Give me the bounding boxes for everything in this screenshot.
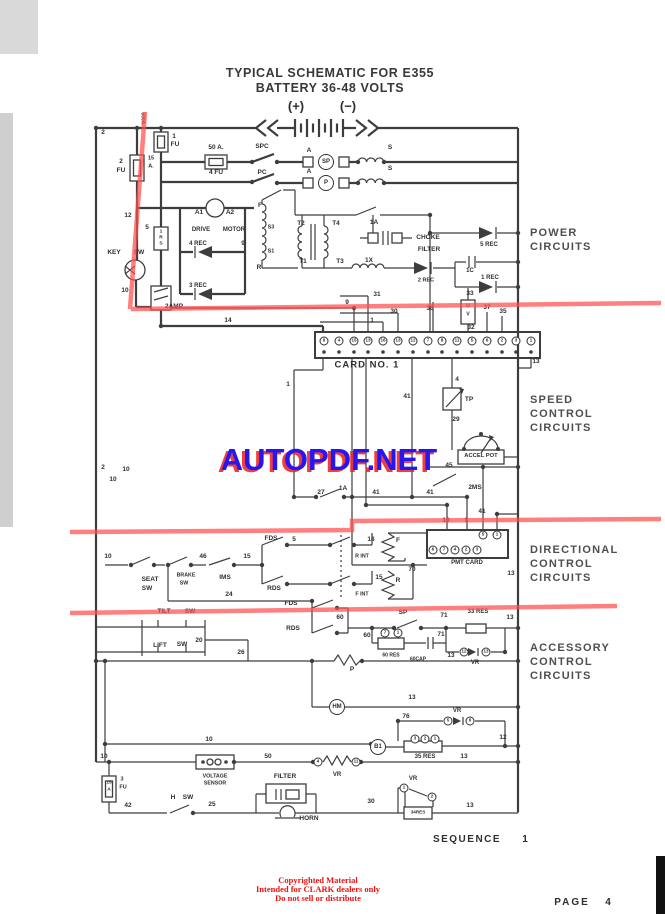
red-line-vertical — [130, 112, 145, 309]
scanned-manual-page: TYPICAL SCHEMATIC FOR E355 BATTERY 36-48… — [0, 0, 665, 914]
red-line-directional — [70, 519, 661, 532]
scan-artifact-right-edge — [656, 856, 665, 914]
red-line-power — [131, 303, 661, 309]
red-line-accessory — [70, 606, 617, 613]
watermark-text: AUTOPDF.NET — [221, 442, 437, 478]
